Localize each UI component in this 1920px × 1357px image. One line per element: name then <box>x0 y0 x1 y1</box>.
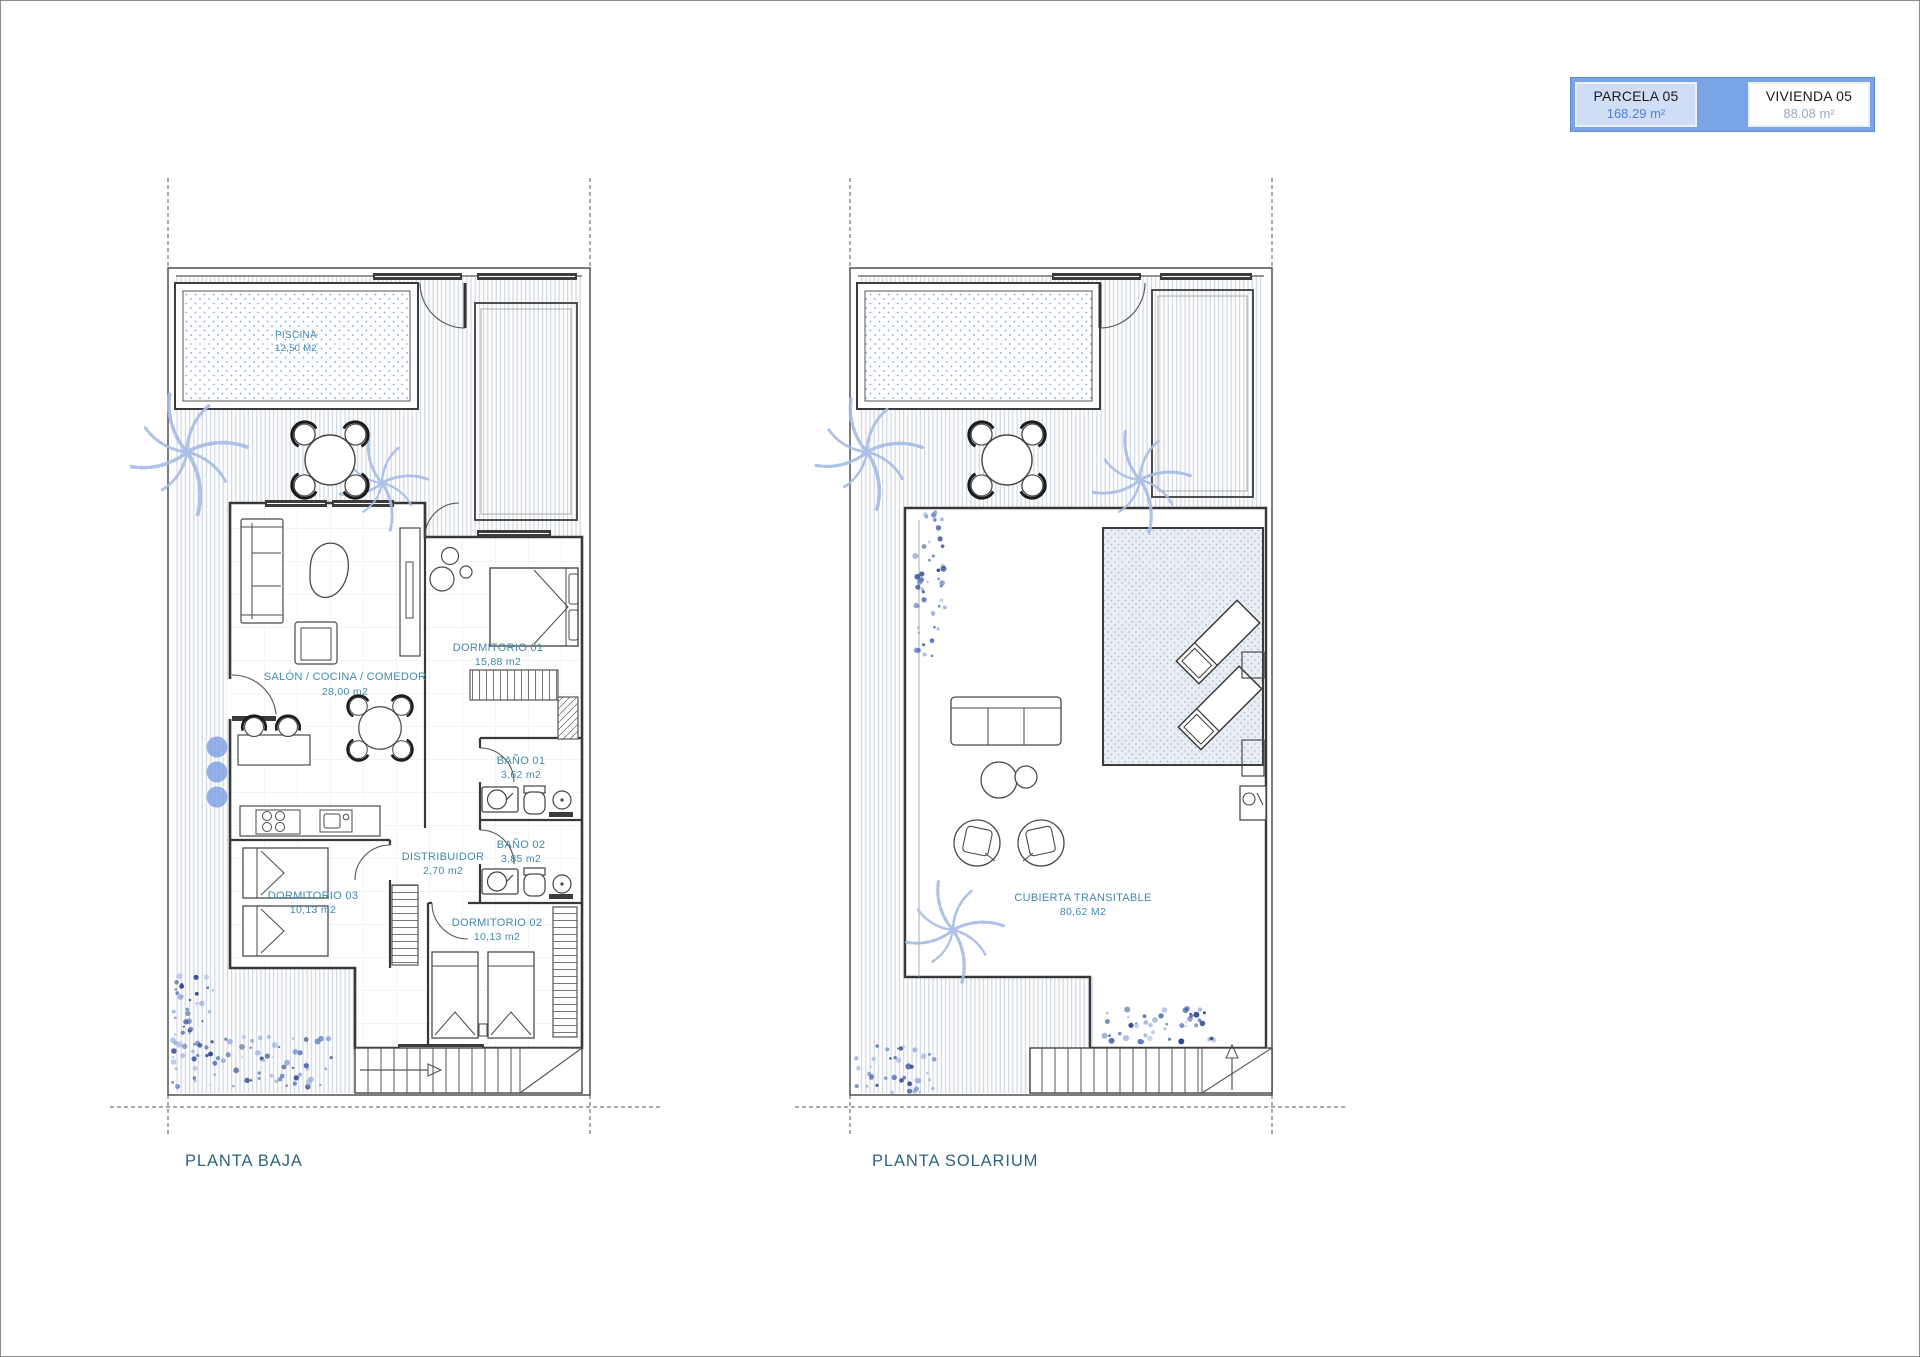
room-label: SALÓN / COCINA / COMEDOR <box>264 670 426 683</box>
wardrobe-icon <box>470 670 558 700</box>
carport <box>475 303 577 520</box>
room-area: 28,00 m2 <box>322 686 368 698</box>
single-bed-icon <box>432 952 478 1038</box>
plan-sheet: PARCELA 05 168.29 m² VIVIENDA 05 88.08 m… <box>0 0 1920 1357</box>
plan-planta-baja: PISCINA12,50 M2 SALÓN / COCINA / COMEDOR… <box>110 178 660 1170</box>
coffee-table-icon <box>981 762 1017 798</box>
room-area: 10,13 m2 <box>474 931 520 943</box>
room-label: DORMITORIO 01 <box>453 642 544 654</box>
room-label: CUBIERTA TRANSITABLE <box>1014 892 1151 904</box>
outdoor-armchair-icon <box>954 820 1000 866</box>
room-area: 3,62 m2 <box>501 769 541 781</box>
shrub-icon <box>207 762 228 783</box>
plan-title-solarium: PLANTA SOLARIUM <box>872 1152 1038 1170</box>
single-bed-icon <box>488 952 534 1038</box>
room-area: 10,13 m2 <box>290 904 336 916</box>
room-area: 12,50 M2 <box>275 343 317 354</box>
room-area: 3,85 m2 <box>501 853 541 865</box>
sofa-icon <box>241 519 283 623</box>
plan-title-baja: PLANTA BAJA <box>185 1152 303 1170</box>
room-label: DORMITORIO 03 <box>268 890 359 902</box>
tv-unit-icon <box>400 528 420 656</box>
shrub-icon <box>207 737 228 758</box>
room-label: BAÑO 02 <box>497 838 546 851</box>
outdoor-sofa-icon <box>951 697 1061 745</box>
shower-drain-icon <box>553 791 571 809</box>
shrub-icon <box>207 787 228 808</box>
room-area: 2,70 m2 <box>423 865 463 877</box>
sink-icon <box>482 869 518 894</box>
shower-drain-icon <box>553 875 571 893</box>
room-label: BAÑO 01 <box>497 754 546 767</box>
closet-icon <box>558 697 578 739</box>
wardrobe-icon <box>553 907 577 1037</box>
wardrobe-icon <box>392 885 418 965</box>
double-bed-icon <box>490 568 578 646</box>
room-label: DISTRIBUIDOR <box>402 851 484 863</box>
coffee-table-icon <box>1015 766 1037 788</box>
carport <box>1152 290 1253 497</box>
pool <box>857 283 1100 409</box>
toilet-icon <box>524 786 545 814</box>
entry-stairs <box>355 1048 582 1093</box>
room-label: PISCINA <box>275 330 317 341</box>
room-area: 80,62 M2 <box>1060 906 1106 918</box>
kitchen-island-icon <box>238 735 310 765</box>
floor-plan-canvas: PISCINA12,50 M2 SALÓN / COCINA / COMEDOR… <box>0 0 1920 1357</box>
sink-icon <box>482 787 518 812</box>
outdoor-armchair-icon <box>1018 820 1064 866</box>
room-label: DORMITORIO 02 <box>452 917 543 929</box>
solarium-stairs <box>1030 1045 1272 1093</box>
room-area: 15,88 m2 <box>475 656 521 668</box>
toilet-icon <box>524 868 545 896</box>
plan-planta-solarium: CUBIERTA TRANSITABLE80,62 M2 PLANTA SOLA… <box>795 178 1345 1170</box>
